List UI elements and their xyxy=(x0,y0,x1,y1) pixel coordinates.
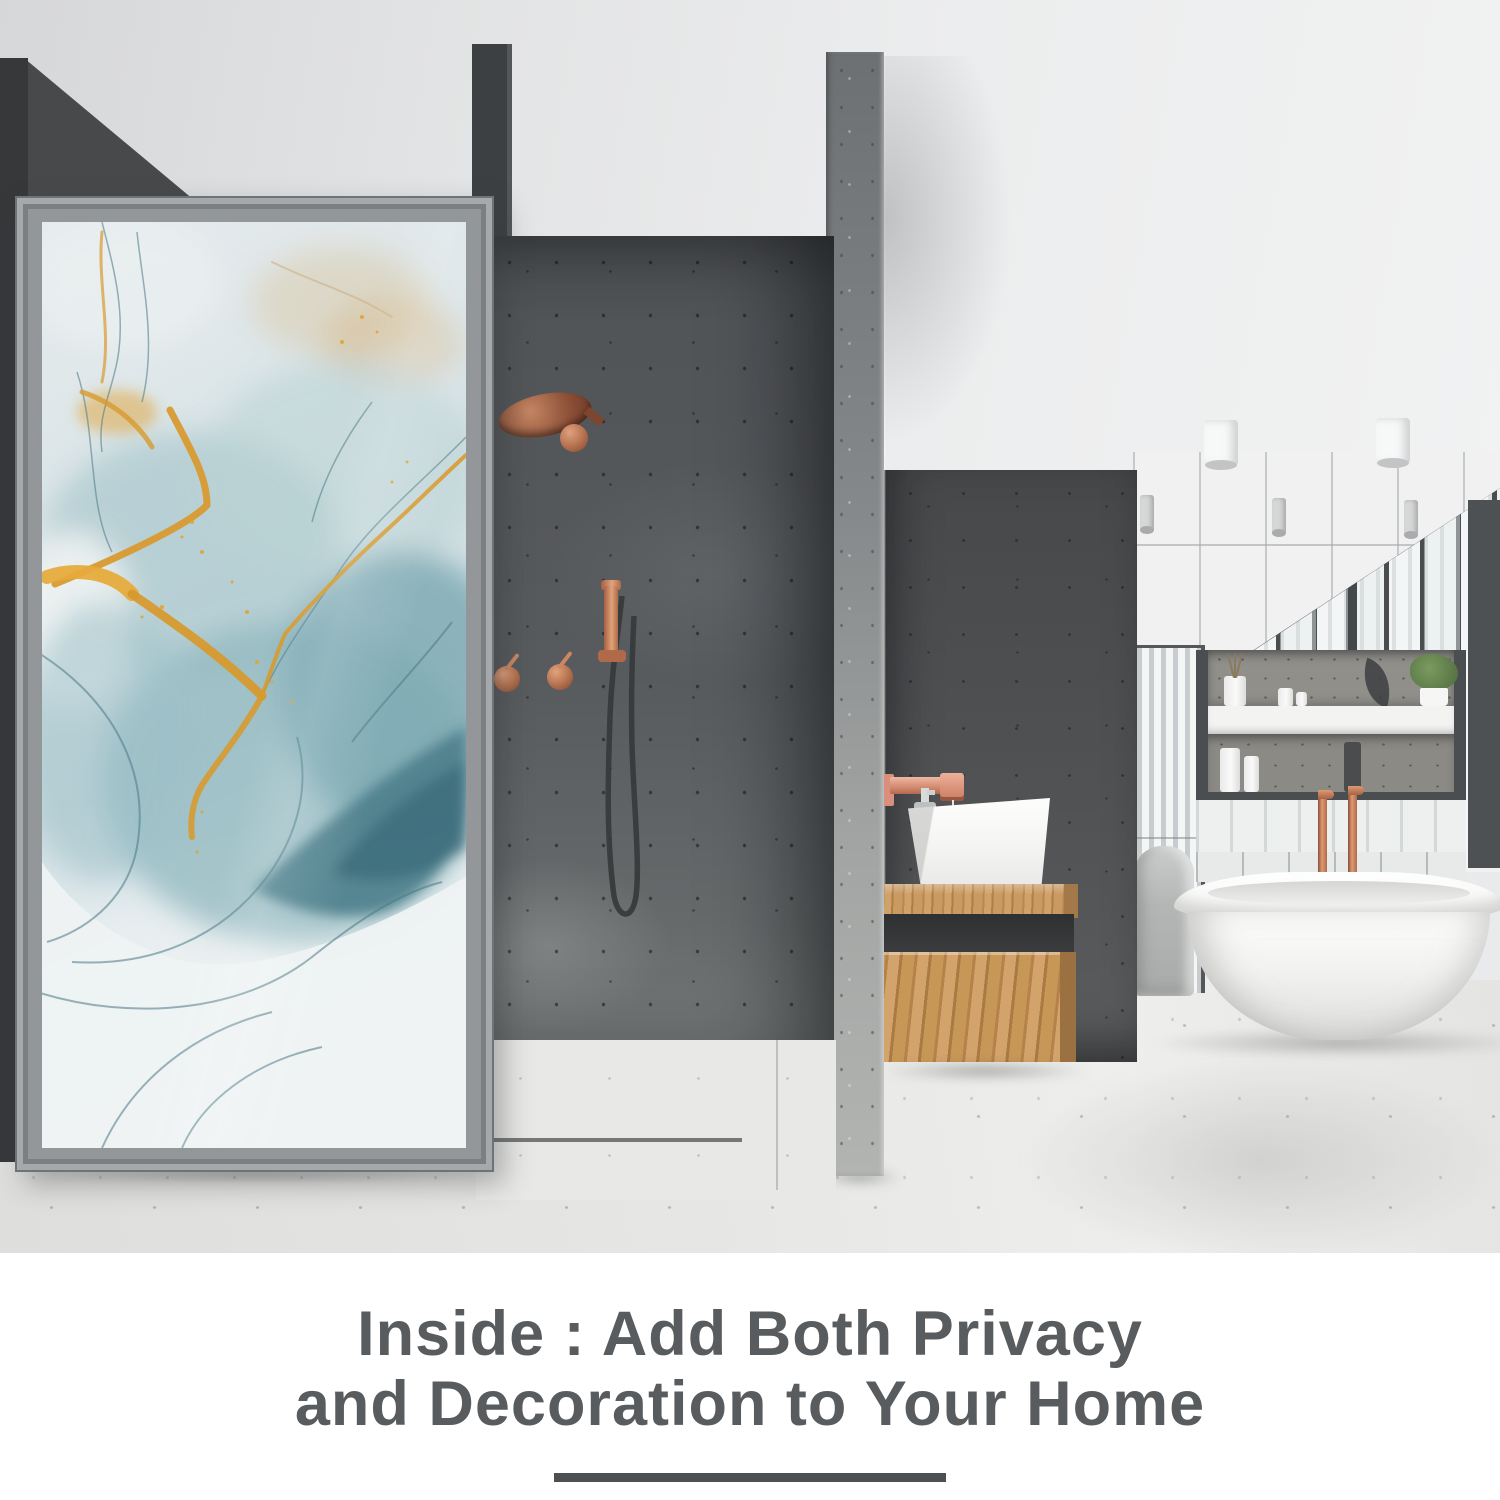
privacy-film-glass-panel xyxy=(15,196,494,1172)
drawer-shadow xyxy=(880,1062,1090,1080)
reed-diffuser xyxy=(1224,676,1246,706)
tub-filler-spout xyxy=(1318,790,1334,799)
bathtub-body xyxy=(1188,912,1490,1040)
shower-tray xyxy=(476,1040,836,1200)
dark-bottle xyxy=(1344,742,1361,792)
bottle xyxy=(1244,756,1259,792)
hand-shower xyxy=(604,586,618,660)
counter-gap-shadow xyxy=(874,914,1074,952)
shower-connector xyxy=(560,424,588,452)
caption-area: Inside : Add Both Privacy and Decoration… xyxy=(0,1253,1500,1500)
mirror-strip xyxy=(1196,800,1466,852)
niche-shelf xyxy=(1196,650,1466,800)
shower-wall xyxy=(486,236,834,1042)
wood-counter xyxy=(874,884,1078,918)
tub-filler-pipe xyxy=(1348,790,1357,882)
wall-light xyxy=(1404,500,1418,536)
jar xyxy=(1278,688,1293,706)
caption-line-2: and Decoration to Your Home xyxy=(295,1369,1205,1439)
wood-counter-end xyxy=(1064,884,1078,918)
product-lifestyle-page: Inside : Add Both Privacy and Decoration… xyxy=(0,0,1500,1500)
plant xyxy=(1410,654,1458,690)
plant-pot xyxy=(1420,688,1448,706)
diffuser-stick xyxy=(1235,654,1243,678)
bathtub xyxy=(1174,872,1500,1044)
niche-upper xyxy=(1208,650,1454,706)
concrete-pillar xyxy=(826,52,884,1176)
ceiling-shadow xyxy=(884,56,1144,596)
shower-valve xyxy=(547,664,573,690)
wood-drawer-end xyxy=(1060,952,1076,1062)
bathroom-photo xyxy=(0,0,1500,1253)
caption-underline xyxy=(554,1473,946,1482)
ceiling-light xyxy=(1204,420,1238,466)
caption-line-1: Inside : Add Both Privacy xyxy=(357,1299,1143,1369)
bottle xyxy=(1220,748,1240,792)
shelf-board xyxy=(1208,706,1454,734)
shower-drain xyxy=(492,1138,742,1142)
ceiling-light xyxy=(1376,418,1410,464)
glass-reflection xyxy=(42,222,466,1148)
shower-tray-edge xyxy=(776,1040,778,1190)
tub-filler-spout xyxy=(1348,786,1364,795)
bathtub-opening xyxy=(1208,881,1470,905)
vessel-sink xyxy=(908,798,1050,886)
faucet-spout xyxy=(940,773,964,801)
floor-shadow xyxy=(1020,1060,1500,1253)
wood-drawer xyxy=(874,952,1074,1062)
concrete-pier xyxy=(1468,500,1500,868)
leaf-decor xyxy=(1354,658,1399,708)
niche-lower xyxy=(1208,734,1454,792)
jar xyxy=(1296,692,1307,706)
shower-valve xyxy=(494,666,520,692)
shower-hose xyxy=(588,596,648,936)
hand-shower-holder xyxy=(598,650,626,662)
soap-spout xyxy=(927,790,935,795)
wall-light xyxy=(1272,498,1286,534)
